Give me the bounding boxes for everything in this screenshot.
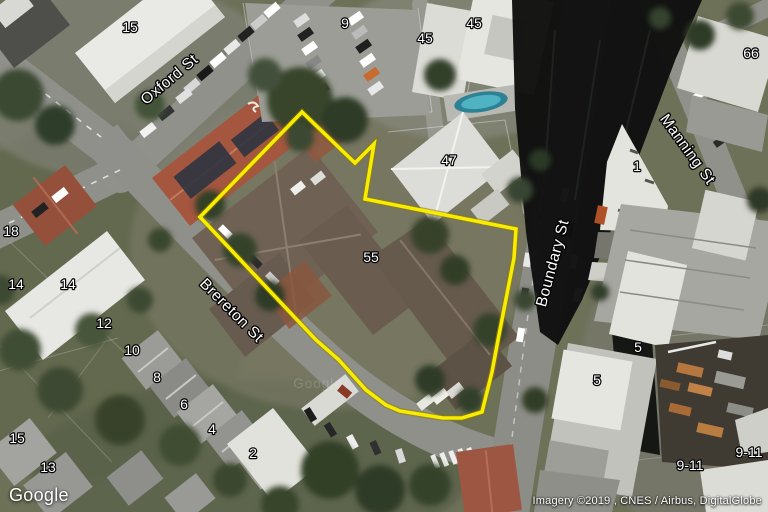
lot-number-label: 9 bbox=[341, 15, 349, 31]
lot-number-label: 45 bbox=[466, 15, 482, 31]
lot-number-label: 10 bbox=[124, 342, 140, 358]
lot-number-label: 15 bbox=[9, 430, 25, 446]
google-logo[interactable]: Google bbox=[9, 485, 69, 506]
attribution-text: Imagery ©2019 , CNES / Airbus, DigitalGl… bbox=[533, 495, 762, 507]
lot-number-label: 14 bbox=[8, 276, 24, 292]
tile-watermark: Google bbox=[293, 376, 343, 391]
lot-number-label: 5 bbox=[634, 339, 642, 355]
lot-number-label: 18 bbox=[3, 223, 19, 239]
lot-number-label: 66 bbox=[743, 45, 759, 61]
lot-number-label: 5 bbox=[593, 372, 601, 388]
lot-number-label: 2 bbox=[249, 445, 257, 461]
lot-number-label: 12 bbox=[96, 315, 112, 331]
lot-number-label: 4 bbox=[208, 421, 216, 437]
lot-number-label: 47 bbox=[441, 152, 457, 168]
lot-number-label: 14 bbox=[60, 276, 76, 292]
satellite-imagery: Google 159454566147551814141210864215135… bbox=[0, 0, 768, 512]
lot-number-label: 1 bbox=[633, 158, 641, 174]
lot-number-label: 13 bbox=[40, 459, 56, 475]
lot-number-label: 15 bbox=[122, 19, 138, 35]
lot-number-label: 8 bbox=[153, 369, 161, 385]
lot-number-label: 9-11 bbox=[736, 444, 763, 460]
satellite-map-viewport[interactable]: Google 159454566147551814141210864215135… bbox=[0, 0, 768, 512]
lot-number-label: 45 bbox=[417, 30, 433, 46]
lot-number-label: 6 bbox=[180, 396, 188, 412]
lot-number-label: 9-11 bbox=[677, 457, 704, 473]
lot-number-label: 55 bbox=[363, 249, 379, 265]
